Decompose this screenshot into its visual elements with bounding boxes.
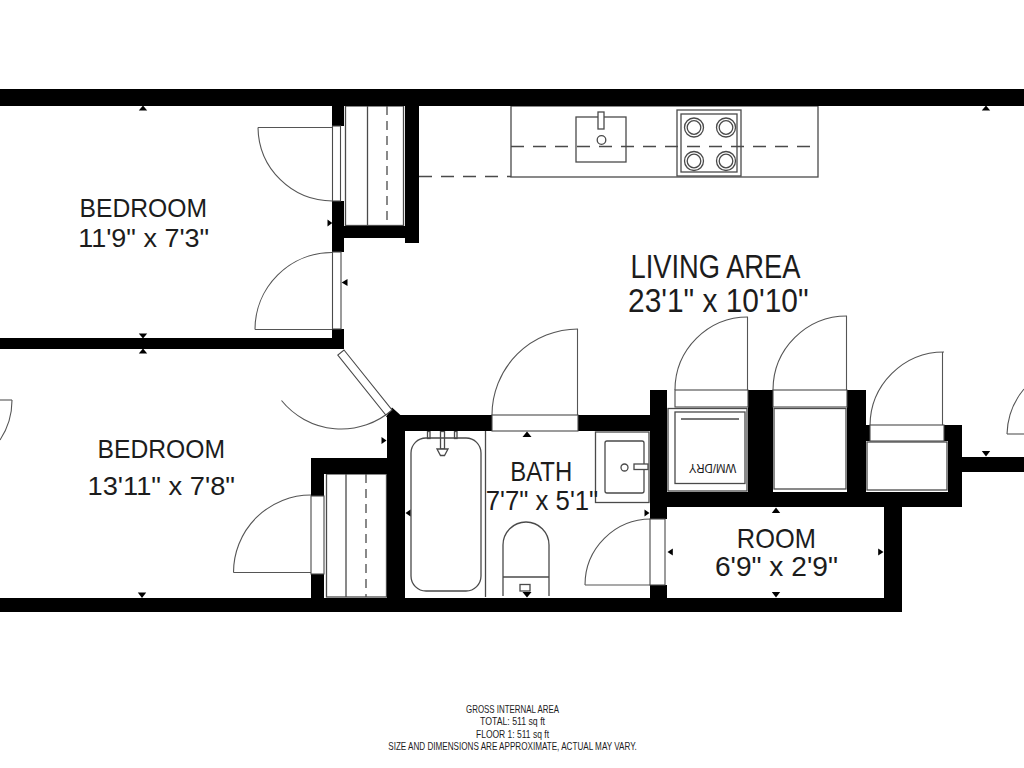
svg-text:SIZE AND DIMENSIONS ARE APPROX: SIZE AND DIMENSIONS ARE APPROXIMATE, ACT… xyxy=(388,740,637,752)
svg-text:WM/DRY: WM/DRY xyxy=(688,461,736,476)
svg-text:BEDROOM: BEDROOM xyxy=(80,194,208,222)
svg-text:13'11" x 7'8": 13'11" x 7'8" xyxy=(88,472,236,500)
svg-text:LIVING AREA: LIVING AREA xyxy=(631,247,801,285)
svg-text:GROSS INTERNAL AREA: GROSS INTERNAL AREA xyxy=(466,703,559,715)
svg-text:TOTAL: 511 sq ft: TOTAL: 511 sq ft xyxy=(480,715,545,727)
svg-text:FLOOR 1: 511 sq ft: FLOOR 1: 511 sq ft xyxy=(476,728,549,740)
svg-text:11'9" x 7'3": 11'9" x 7'3" xyxy=(78,224,209,252)
svg-text:6'9" x 2'9": 6'9" x 2'9" xyxy=(715,551,838,582)
svg-text:BATH: BATH xyxy=(510,457,572,487)
svg-text:ROOM: ROOM xyxy=(737,523,816,554)
svg-text:7'7" x 5'1": 7'7" x 5'1" xyxy=(486,486,599,516)
svg-text:BEDROOM: BEDROOM xyxy=(98,435,226,463)
svg-text:23'1" x 10'10": 23'1" x 10'10" xyxy=(628,281,809,319)
